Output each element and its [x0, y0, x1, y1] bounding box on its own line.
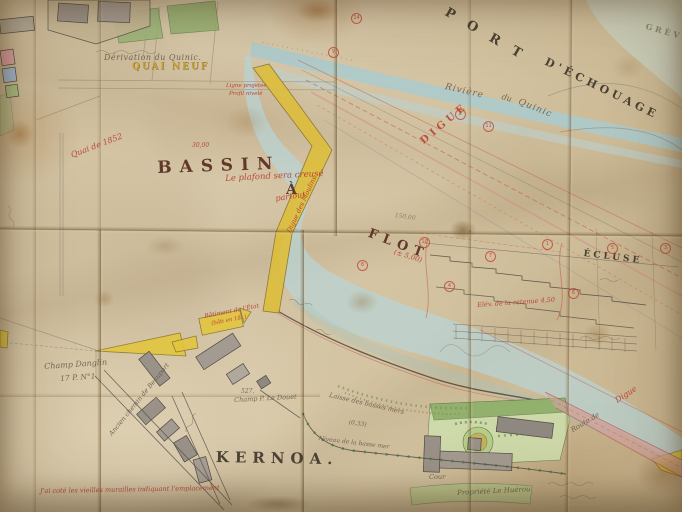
label-quai-neuf: QUAI NEUF [132, 63, 209, 72]
circled-number-10: 10 [419, 237, 430, 248]
circled-number-8: 8 [357, 260, 368, 271]
quay-wedge-west [95, 333, 186, 356]
pink-building [0, 49, 15, 66]
circled-number-2: 2 [455, 109, 466, 120]
circled-number-7: 7 [485, 251, 496, 262]
circled-number-5: 5 [607, 243, 618, 254]
label-derivation: Dérivation du Quinic. [104, 54, 201, 62]
digue-project-lines [298, 60, 682, 432]
label-cote-30: 30,00 [192, 143, 209, 149]
circled-number-14: 14 [351, 13, 362, 24]
circled-number-1: 1 [542, 239, 553, 250]
label-cour: Cour [429, 474, 445, 481]
label-profil-nivele: Profil nivelé [229, 92, 263, 98]
circled-number-9: 9 [328, 47, 339, 58]
historic-port-map-photo: PORTD'ÉCHOUAGEGRÈVEBASSINÀFLOTKERNOA.ÉCL… [0, 0, 682, 512]
label-ligne-projetee: Ligne projetée [226, 84, 267, 90]
circled-number-11: 11 [483, 121, 494, 132]
circled-number-6: 6 [568, 288, 579, 299]
label-kernoa: KERNOA. [216, 450, 339, 467]
circled-number-3: 3 [660, 243, 671, 254]
garden-top-2 [167, 1, 219, 34]
circled-number-4: 4 [444, 281, 455, 292]
blue-building [2, 67, 17, 83]
